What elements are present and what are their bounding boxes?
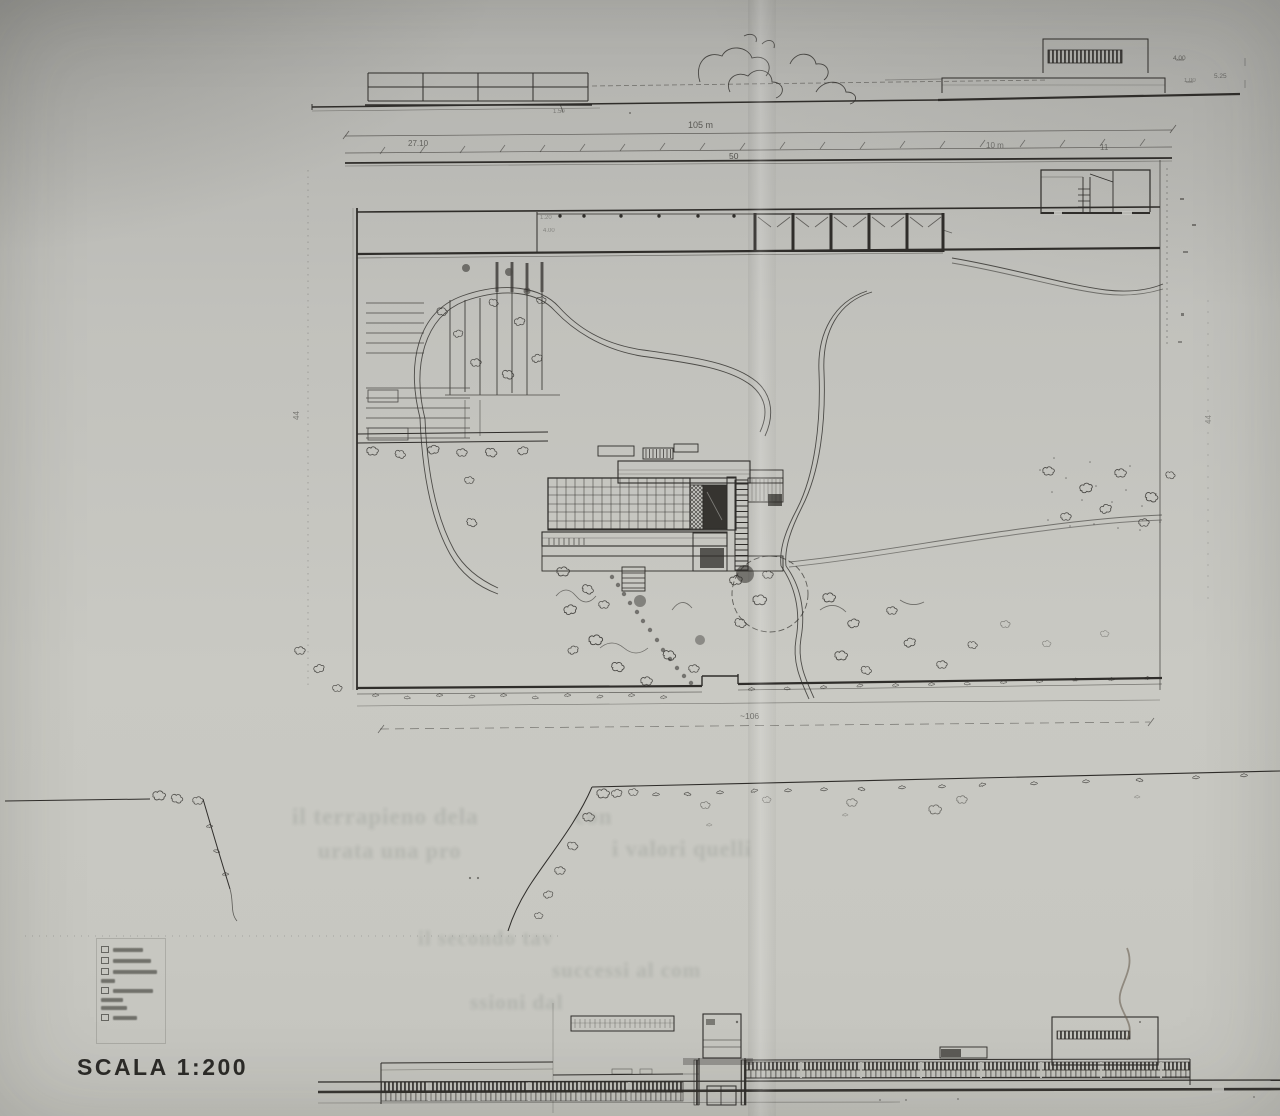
legend-smudge-text [101,1006,127,1010]
legend-row [101,957,161,964]
house-plan [542,444,924,685]
legend-smudge-text [101,998,123,1002]
ghost-text-line: ssioni dal [470,990,563,1015]
legend-row [101,1006,161,1010]
bottom-garden-elevation [318,948,1280,1113]
kitchen-garden-rows [366,262,560,440]
dim-label: 1.20 [540,215,552,221]
dim-label: 4.00 [1173,55,1186,62]
legend-key-box [101,1014,109,1021]
legend-smudge-text [113,1016,137,1020]
top-dimension-lines [343,125,1176,154]
legend-smudge-text [101,979,115,983]
ghost-text-line: con [575,804,613,830]
gatehouse-plan [1041,170,1196,343]
legend-row [101,1014,161,1021]
dim-label: 10 m [986,141,1004,150]
site-plan [308,125,1208,733]
drawing-legend [96,938,166,1044]
architectural-linework [0,0,1280,1116]
scale-label: SCALA 1:200 [77,1054,248,1081]
hair-scan-artifact [1120,948,1130,1040]
dim-label: 5.25 [1214,73,1227,80]
ghost-text-line: successi al com [552,958,701,983]
ghost-text-line: il terrapieno dela [292,804,479,830]
legend-key-box [101,957,109,964]
ghost-text-line: urata una pro [318,838,461,864]
legend-smudge-text [113,948,143,952]
dim-label: 4.00 [543,228,555,234]
bottom-boundary-wall [357,674,1162,733]
legend-row [101,946,161,953]
legend-smudge-text [113,989,153,993]
dim-label: 1.50 [553,109,565,115]
plot-boundaries [308,158,1208,690]
legend-key-box [101,987,109,994]
dim-label: 44 [1204,415,1213,424]
legend-row [101,998,161,1002]
legend-smudge-text [113,959,151,963]
garden-squiggles [556,590,924,653]
dim-label: 105 m [688,120,713,130]
boundary-wall-pergola [537,212,952,252]
lawn-paths [781,258,1163,699]
mid-path [357,432,548,443]
dim-label: 50 [729,151,738,161]
dim-label: 27.10 [408,139,428,148]
dim-label: 1.00 [1184,78,1196,84]
scanned-drawing-page: SCALA 1:200 105 m27.105010 m11~10644444.… [0,0,1280,1116]
dim-label: 44 [292,411,301,420]
legend-row [101,968,161,975]
legend-row [101,987,161,994]
legend-row [101,979,161,983]
street-trees-sketch [698,34,855,104]
top-street-elevation [312,34,1245,114]
ghost-text-line: il secondo tav [418,926,553,951]
legend-smudge-text [113,970,157,974]
ground-specks [879,1096,1255,1101]
legend-key-box [101,968,109,975]
dim-label: ~106 [740,711,759,721]
dim-label: 11 [1100,143,1108,152]
legend-key-box [101,946,109,953]
ghost-text-line: i valori quelli [612,836,752,862]
